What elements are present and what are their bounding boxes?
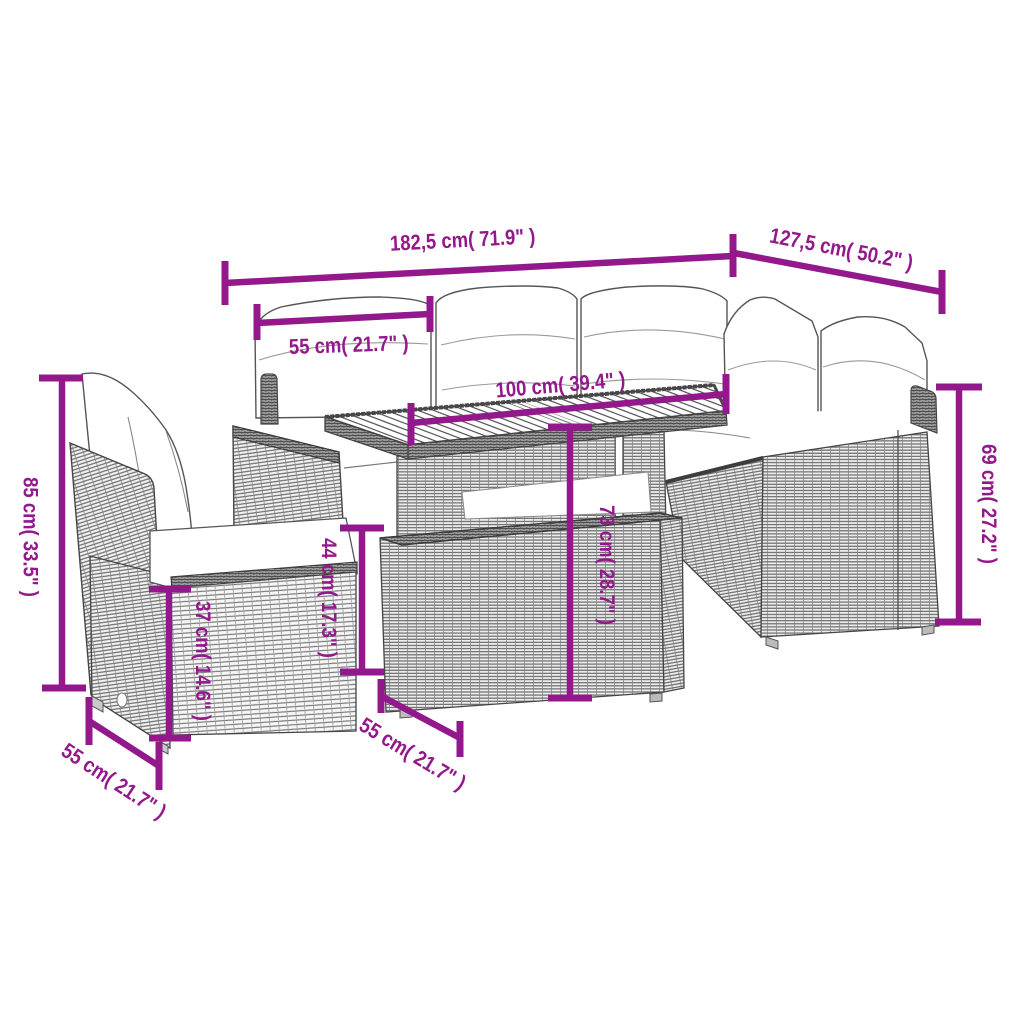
svg-text:37 cm( 14.6" ): 37 cm( 14.6" ) [191,601,215,721]
svg-text:69 cm( 27.2" ): 69 cm( 27.2" ) [977,444,1001,564]
svg-text:44 cm( 17.3" ): 44 cm( 17.3" ) [317,538,341,658]
svg-text:73 cm( 28.7" ): 73 cm( 28.7" ) [595,505,619,625]
svg-text:85 cm( 33.5" ): 85 cm( 33.5" ) [18,477,42,597]
svg-text:55 cm( 21.7" ): 55 cm( 21.7" ) [289,332,409,360]
